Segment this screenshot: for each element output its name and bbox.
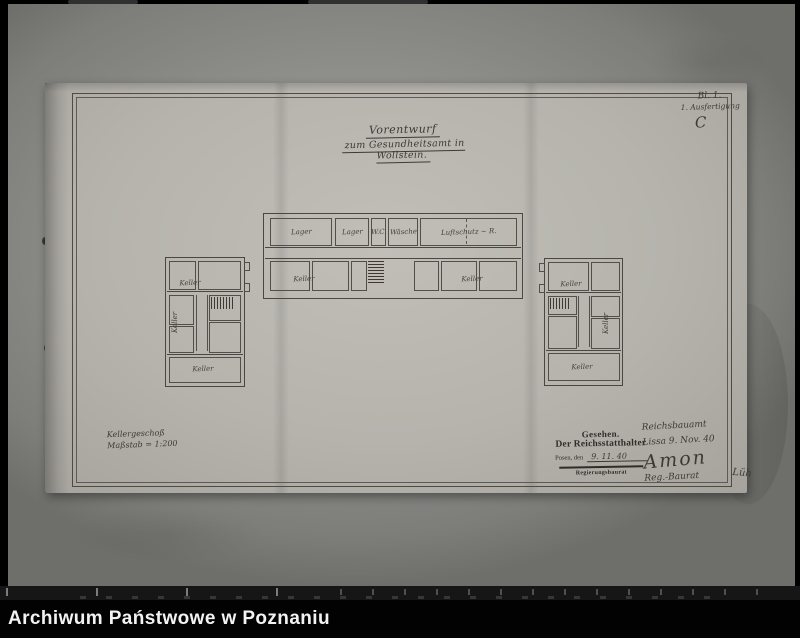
archive-name-text: Archiwum Państwowe w Poznaniu <box>0 608 330 630</box>
photo-backing-board: Vorentwurf zum Gesundheitsamt in Wollste… <box>8 4 795 586</box>
stamp-authority-text: Der Reichsstatthalter <box>551 438 651 450</box>
title-text: Vorentwurf <box>366 122 440 139</box>
section-wall <box>546 350 621 351</box>
staircase <box>368 261 384 284</box>
corridor-wall <box>265 258 521 259</box>
dashed-partition <box>466 219 467 244</box>
section-wall <box>167 291 243 292</box>
room-label: Keller <box>168 278 212 288</box>
room-lager-1: Lager <box>270 218 332 246</box>
scale-note: Kellergeschoß Maßstab = 1:200 <box>107 427 178 451</box>
floor-plan-right-wing: Keller Keller Keller <box>544 258 623 386</box>
drawing-title: Vorentwurf zum Gesundheitsamt in Wollste… <box>318 121 489 163</box>
title-line-1: Vorentwurf <box>318 121 488 138</box>
staircase <box>550 298 570 309</box>
section-wall <box>546 292 621 293</box>
room-label: Lager <box>341 228 362 237</box>
scale-ticks <box>6 588 336 596</box>
floor-plan-left-wing: Keller Keller Keller <box>165 257 245 387</box>
countersign-paraph: Lüh <box>732 466 753 482</box>
room-wc: W.C. <box>371 218 386 246</box>
room-label-vertical: Keller <box>602 299 610 347</box>
section-wall <box>167 354 243 355</box>
room-label: Keller <box>549 279 593 289</box>
wall-stub <box>539 263 545 272</box>
wall-stub <box>244 283 250 292</box>
room-label: Wäsche <box>389 228 416 237</box>
sheet-edge-shadow <box>45 83 747 92</box>
corridor <box>196 295 208 351</box>
stamp-place-prefix: Posen, den <box>555 454 583 461</box>
sheet-number-note: Bl. 1. 1. Ausfertigung C <box>624 90 740 134</box>
stamp-signature-line <box>559 465 643 468</box>
stamp-handwritten-date: 9. 11. 40 <box>587 451 647 462</box>
room-keller <box>351 261 367 291</box>
room-luftschutz: Luftschutz ~ R. <box>420 218 517 246</box>
sheet-fold-shadow <box>45 83 69 493</box>
floor-plan-main-building: Lager Lager W.C. Wäsche Luftschutz ~ R. … <box>263 213 523 299</box>
room-waesche: Wäsche <box>388 218 418 246</box>
archival-scan-viewport: Vorentwurf zum Gesundheitsamt in Wollste… <box>0 0 800 638</box>
reichsstatthalter-stamp: Gesehen. Der Reichsstatthalter Posen, de… <box>551 428 652 477</box>
corridor <box>578 296 590 347</box>
staircase <box>211 297 233 309</box>
scale-tick-labels <box>80 596 720 599</box>
film-edge-mark <box>68 0 138 4</box>
subtitle-text: zum Gesundheitsamt in Wollstein. <box>341 138 464 164</box>
room-label: Lager <box>290 228 311 237</box>
drawing-sheet: Vorentwurf zum Gesundheitsamt in Wollste… <box>45 83 747 493</box>
scale-ticks <box>340 589 770 595</box>
room-label-vertical: Keller <box>171 296 179 348</box>
room <box>209 322 241 353</box>
room-label: Luftschutz ~ R. <box>441 227 497 237</box>
archive-watermark-bar: Archiwum Państwowe w Poznaniu <box>0 600 800 638</box>
title-line-2: zum Gesundheitsamt in Wollstein. <box>318 137 488 163</box>
room <box>548 316 577 349</box>
room-label: W.C. <box>371 228 387 237</box>
photographic-scale-strip <box>0 586 800 600</box>
wall-stub <box>539 284 545 293</box>
wall-stub <box>244 262 250 271</box>
stamp-date-line: Posen, den 9. 11. 40 <box>551 451 651 463</box>
paper-blotch <box>68 504 268 564</box>
corridor-wall <box>265 247 521 248</box>
room <box>591 262 620 291</box>
room-keller <box>414 261 439 291</box>
office-signature-note: Reichsbauamt Lissa 9. Nov. 40 Amon Reg.-… <box>641 415 752 486</box>
film-edge-mark <box>308 0 428 4</box>
room-lager-2: Lager <box>335 218 369 246</box>
